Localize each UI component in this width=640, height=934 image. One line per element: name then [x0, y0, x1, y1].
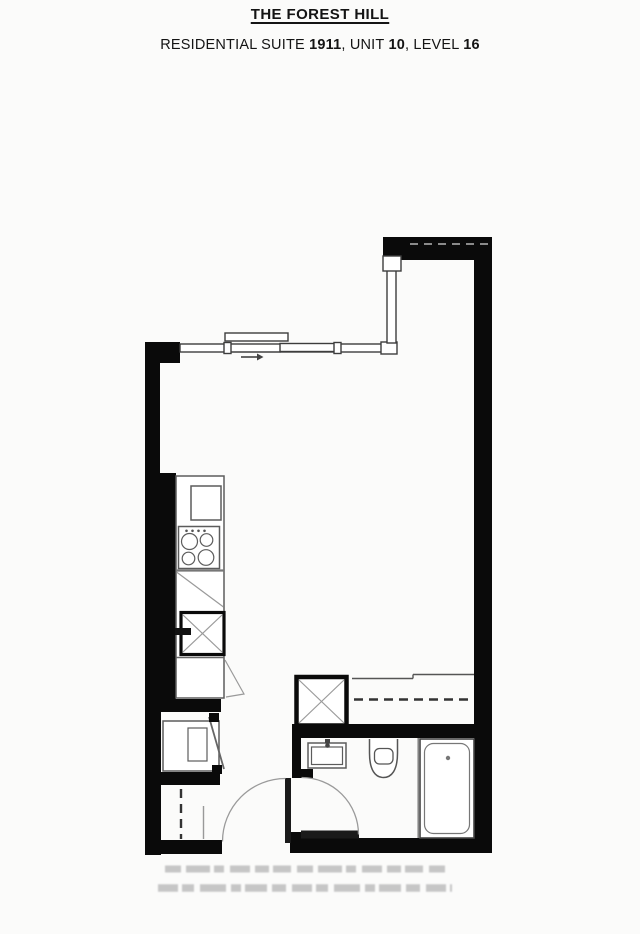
wall-bottom-right — [290, 838, 492, 853]
wall-bottom-left — [146, 840, 222, 854]
window-mullion-2 — [334, 343, 341, 354]
cooktop-knob — [203, 530, 206, 533]
slide-direction-arrow — [241, 354, 264, 361]
wall-bathroom-stub-foot — [292, 769, 313, 778]
closet-door-hinge — [209, 713, 219, 722]
toilet — [370, 739, 398, 778]
kitchen-sink — [191, 486, 221, 520]
sliding-door-outer-panel — [225, 333, 288, 341]
wall-right — [474, 237, 492, 853]
bathroom-door-swing — [301, 778, 359, 839]
window-wall — [180, 256, 401, 361]
faucet-stem — [325, 739, 330, 744]
oven-appliance — [175, 613, 224, 655]
wardrobe-closet — [181, 789, 204, 839]
bathroom-door-leaf — [301, 831, 359, 839]
wall-left-upper — [145, 342, 160, 476]
counter-end-diagonal — [225, 660, 244, 697]
bathtub — [420, 739, 474, 838]
sliding-door-inner-panel — [280, 344, 337, 352]
wall-below-kitchen — [159, 699, 221, 712]
entry-door-arc — [223, 779, 286, 842]
bathroom-door-arc — [302, 778, 359, 835]
cooktop-knob — [191, 530, 194, 533]
bathroom-vanity — [308, 739, 346, 768]
bathroom — [301, 738, 474, 839]
arrow-head — [257, 354, 264, 361]
linen-closet — [352, 675, 474, 700]
oven-handle — [175, 628, 191, 635]
kitchen — [175, 476, 244, 698]
disclaimer-smudges — [158, 869, 452, 888]
entry-door-swing — [223, 778, 292, 843]
bathtub-outer — [420, 739, 474, 838]
window-mullion-1 — [224, 343, 231, 354]
laundry-closet — [163, 713, 224, 774]
entry-door-leaf — [285, 778, 291, 843]
floorplan-drawing — [0, 0, 640, 934]
wall-left-kitchen — [145, 473, 176, 712]
mechanical-shaft — [297, 677, 347, 726]
bathtub-drain — [446, 756, 450, 760]
cooktop-knob — [185, 530, 188, 533]
cooktop-knob — [197, 530, 200, 533]
cooktop — [179, 527, 220, 569]
window-corner-post-lower — [381, 342, 397, 354]
window-corner-post-upper — [383, 256, 401, 271]
closet-door-hinge — [212, 765, 222, 774]
faucet — [325, 743, 330, 748]
window-vertical — [387, 266, 396, 343]
wall-laundry-closet-divider — [158, 772, 220, 785]
floor-plan-page: THE FOREST HILL RESIDENTIAL SUITE 1911, … — [0, 0, 640, 934]
